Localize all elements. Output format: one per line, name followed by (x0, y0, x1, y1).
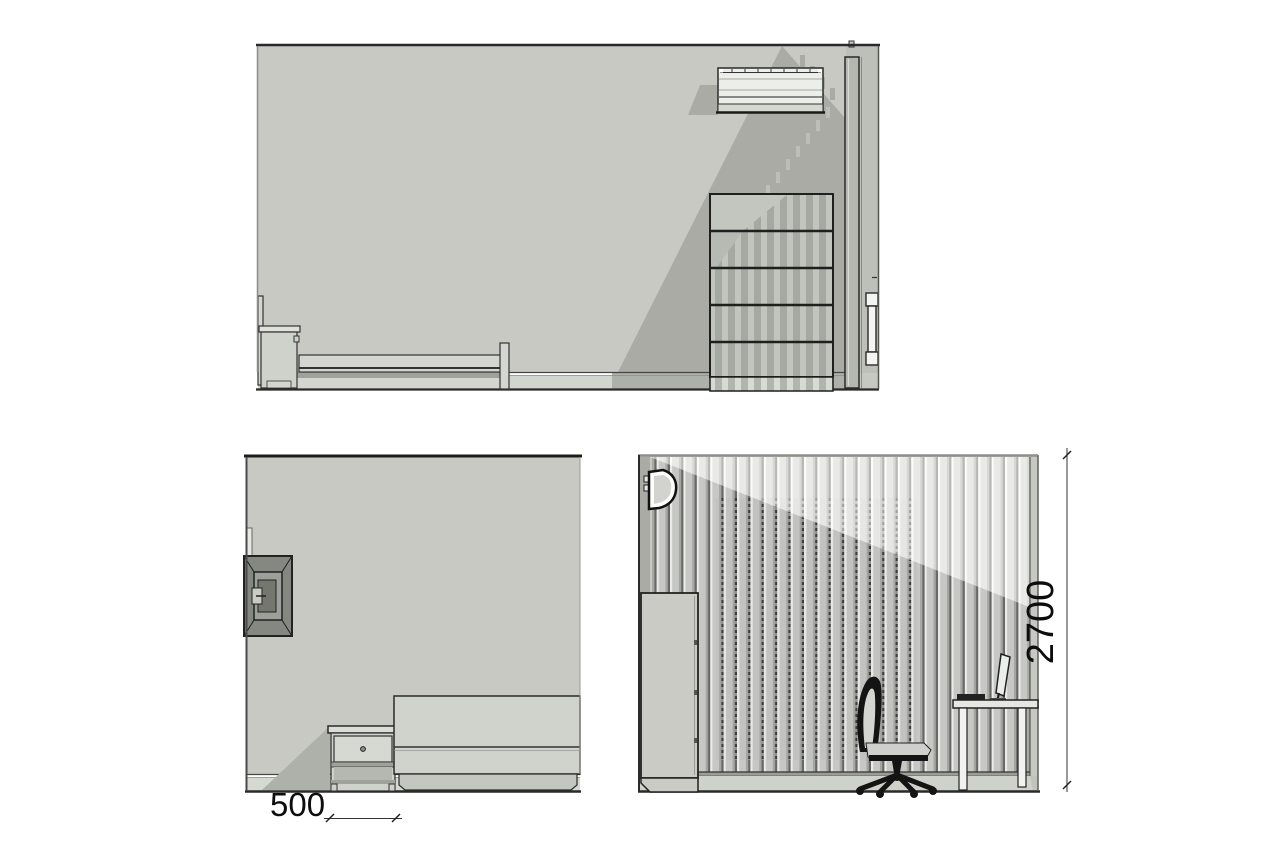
bed-shadow (263, 372, 501, 378)
drawer-knob (361, 747, 366, 752)
keyboard (957, 694, 985, 700)
drawing-canvas: 500 (0, 0, 1280, 853)
nightstand-body (261, 332, 297, 388)
footboard-post (500, 343, 509, 389)
desk-leg (959, 708, 967, 790)
cabinet-side (641, 593, 698, 792)
dimension-2700-label: 2700 (1020, 580, 1062, 665)
desk-leg (1018, 708, 1026, 787)
nightstand-leg-gap (267, 381, 291, 388)
air-conditioner (716, 68, 825, 113)
elevation-sheet: 500 (0, 0, 1280, 853)
top-elevation (256, 41, 880, 391)
bottom-left-elevation: 500 (244, 456, 582, 823)
slat-wall (650, 457, 1037, 776)
nightstand-knob (294, 336, 299, 342)
chair-seat (866, 743, 931, 757)
shelving-unit (710, 194, 833, 391)
nightstand-front (328, 726, 398, 791)
desk-top (953, 700, 1038, 708)
bed-headboard (394, 696, 580, 790)
slat-screen-post (845, 41, 859, 388)
nightstand-top (259, 326, 300, 332)
bed-base (399, 774, 577, 790)
dimension-500-label: 500 (270, 786, 325, 823)
bottom-right-elevation: 2700 (638, 448, 1071, 798)
bed-platform (299, 355, 501, 372)
shelving-plinth (710, 377, 833, 391)
